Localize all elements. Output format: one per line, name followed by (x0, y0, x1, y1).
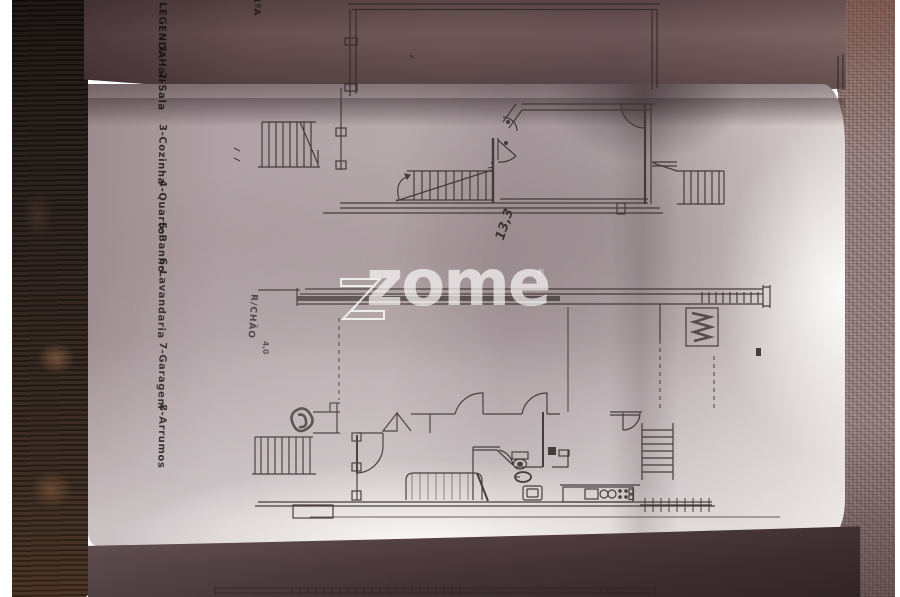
plan-legend: LEGENDA 1-Hall 2-Sala 3-Cozinha 4-Quarto… (152, 0, 182, 460)
scan-margin-right (895, 0, 900, 597)
legend-item-2: 2-Sala (155, 72, 167, 111)
legend-item-6: 6-Lavandaria (155, 258, 168, 339)
floorplan-photo: LEGENDA 1-Hall 2-Sala 3-Cozinha 4-Quarto… (0, 0, 900, 597)
legend-item-7: 7-Garagem (155, 342, 168, 410)
upper-floor-label: 1ºA (251, 0, 261, 15)
textured-background-right (838, 0, 896, 597)
paper-sheet-main (88, 84, 845, 546)
wood-frame-left (12, 0, 88, 597)
ground-floor-annotation: 4,0 (261, 341, 270, 354)
legend-item-8: 8-Arrumos (155, 404, 168, 469)
legend-item-3: 3-Cozinha (155, 124, 168, 185)
